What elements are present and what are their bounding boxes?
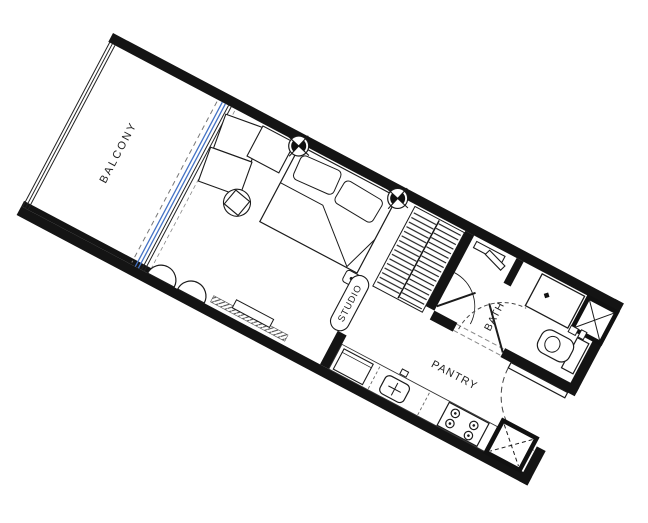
floor-plan-drawing: BALCONY (17, 33, 624, 486)
kitchen-counter (329, 339, 501, 452)
walls (17, 33, 624, 486)
floor-plan-canvas: BALCONY (0, 0, 648, 523)
pantry-label: PANTRY (429, 358, 480, 392)
bath-label: BATH (482, 300, 507, 333)
floor-plan-rotated-container: BALCONY (17, 33, 624, 486)
balcony-label: BALCONY (98, 120, 140, 186)
wall-shower-stub (504, 258, 524, 286)
wall-bottom-jog (21, 201, 151, 274)
wall-bath-south-left (430, 311, 458, 332)
balcony-railing (23, 43, 115, 210)
